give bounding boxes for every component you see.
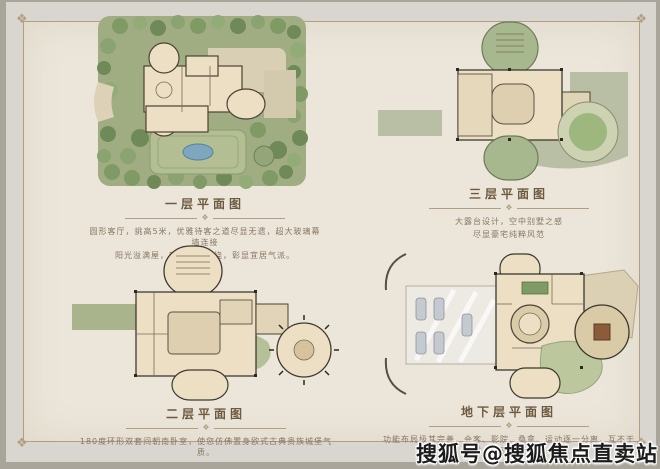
floor1-title: 一层平面图 (165, 195, 245, 212)
floor1-section: 一层平面图 ❖ 圆形客厅，挑高5米，优雅待客之道尽显无遗，超大玻璃幕墙连接 阳光… (86, 10, 324, 262)
title-divider: ❖ (126, 424, 286, 432)
divider-ornament-icon: ❖ (505, 422, 512, 430)
floor2-title: 二层平面图 (166, 405, 246, 422)
divider-ornament-icon: ❖ (201, 214, 208, 222)
title-divider: ❖ (429, 204, 589, 212)
floor3-desc-line1: 大露台设计，空中别墅之感 (455, 216, 563, 227)
page: ❖ ❖ ❖ ❖ (0, 0, 660, 469)
corner-ornament-icon: ❖ (16, 13, 28, 26)
floor2-desc-line1: 180度环形双套间朝南卧室，使您仿佛置身欧式古典贵族城堡气质。 (72, 436, 340, 458)
floor3-desc-line2: 尽显豪宅纯粹风范 (473, 229, 545, 240)
title-divider: ❖ (125, 214, 285, 222)
divider-ornament-icon: ❖ (505, 204, 512, 212)
divider-ornament-icon: ❖ (202, 424, 209, 432)
floor3-title: 三层平面图 (469, 185, 549, 202)
floor2-plan-illustration (72, 242, 340, 402)
basement-plan-illustration (376, 248, 642, 400)
floor2-section: 二层平面图 ❖ 180度环形双套间朝南卧室，使您仿佛置身欧式古典贵族城堡气质。 (72, 242, 340, 459)
corner-ornament-icon: ❖ (16, 437, 28, 450)
basement-title: 地下层平面图 (461, 403, 557, 420)
sohu-watermark: 搜狐号@搜狐焦点直卖站 (416, 438, 658, 468)
floor1-site-plan-illustration (86, 10, 324, 192)
basement-section: 地下层平面图 ❖ 功能布局极其完善，会客、影院、桑拿、运动逐一分离，互不干扰，私… (376, 248, 642, 457)
floor3-plan-illustration (378, 14, 640, 182)
floor3-section: 三层平面图 ❖ 大露台设计，空中别墅之感 尽显豪宅纯粹风范 (378, 14, 640, 241)
title-divider: ❖ (429, 422, 589, 430)
